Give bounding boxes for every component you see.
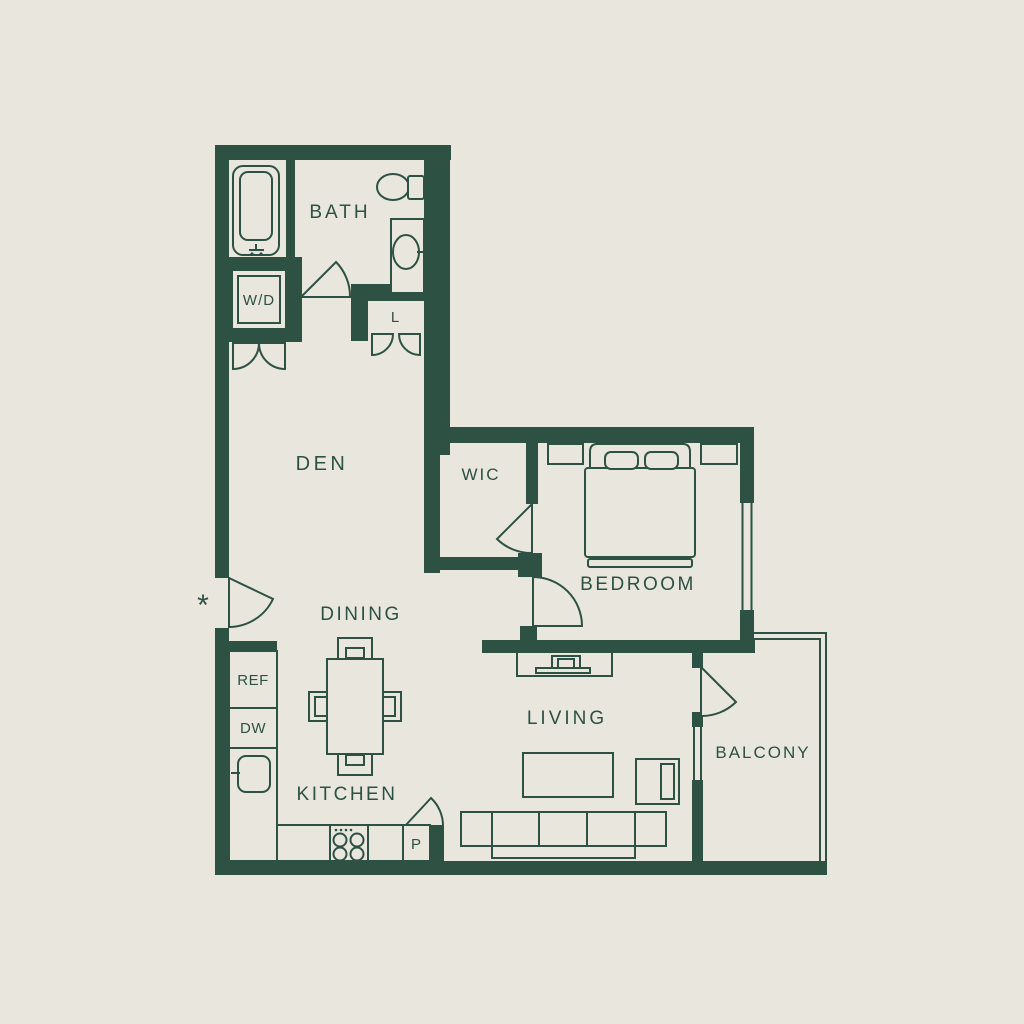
balcony-door: [701, 667, 736, 716]
wic-door: [497, 504, 532, 553]
dining-table: [327, 659, 383, 754]
kitchen-label: KITCHEN: [297, 784, 398, 805]
sofa: [461, 812, 666, 858]
washer-dryer-closet: W/D: [233, 271, 285, 369]
coffee-table: [523, 753, 613, 797]
armchair: [636, 759, 679, 804]
den-label: DEN: [296, 453, 349, 475]
sofa-arm-left: [461, 812, 492, 846]
linen-closet: L: [368, 301, 424, 355]
linen-bifold-left: [372, 334, 393, 355]
tv-console: [517, 652, 612, 676]
bathtub: [233, 166, 279, 256]
nightstand-right: [701, 444, 737, 464]
wall-linen-left: [351, 301, 368, 341]
bedroom-label: BEDROOM: [580, 574, 696, 595]
wall-top: [215, 145, 451, 160]
dining-set: [309, 638, 401, 775]
stove: [330, 825, 368, 861]
wall-balcony-lower: [692, 780, 703, 875]
pantry-label: P: [411, 836, 421, 853]
pillow-right: [645, 452, 678, 469]
wall-balcony-stub1: [692, 653, 703, 668]
wall-left-lower: [215, 628, 229, 875]
entry-door: [229, 578, 273, 627]
wall-left-upper: [215, 145, 229, 578]
wall-den-right: [424, 145, 450, 455]
bath-vanity-sink: [391, 219, 425, 293]
wd-door-left: [233, 343, 259, 369]
linen-bifold-right: [399, 334, 420, 355]
wall-wic-right: [526, 443, 538, 504]
refrigerator-label: REF: [237, 672, 269, 689]
bath-label: BATH: [309, 202, 370, 223]
dining-chair-top: [338, 638, 372, 660]
bedroom-window: [740, 503, 754, 610]
pantry-door: [405, 798, 443, 826]
mattress: [585, 468, 695, 557]
pillow-left: [605, 452, 638, 469]
balcony-label: BALCONY: [715, 743, 810, 762]
floor-plan: W/D L: [0, 0, 1024, 1024]
wall-post-mid: [518, 553, 542, 577]
wall-bedroom-top: [424, 427, 754, 443]
bedroom-door: [533, 577, 582, 626]
wic-label: WIC: [461, 465, 500, 484]
linen-label: L: [391, 309, 399, 326]
balcony-window: [692, 727, 703, 780]
wall-wic-bottom: [424, 557, 527, 570]
washer-dryer-label: W/D: [243, 292, 275, 309]
wall-pantry-stub: [430, 825, 444, 861]
wd-door-right: [259, 343, 285, 369]
entry-asterisk: *: [197, 589, 209, 622]
wall-wic-left: [424, 443, 440, 573]
toilet: [377, 174, 424, 200]
nightstand-left: [548, 444, 583, 464]
sofa-arm-right: [635, 812, 666, 846]
wall-bottom: [215, 861, 827, 875]
wall-post-bedroom-door: [520, 626, 537, 642]
walls: [215, 145, 827, 875]
wall-tub-divider: [286, 158, 295, 258]
bath-door: [301, 262, 350, 297]
dining-chair-bottom: [338, 753, 372, 775]
dishwasher-label: DW: [240, 720, 266, 737]
dining-label: DINING: [320, 604, 402, 625]
bed-bench: [588, 559, 692, 567]
wall-bedroom-right-upper: [740, 443, 754, 503]
living-label: LIVING: [527, 708, 607, 729]
bed: [548, 444, 737, 567]
